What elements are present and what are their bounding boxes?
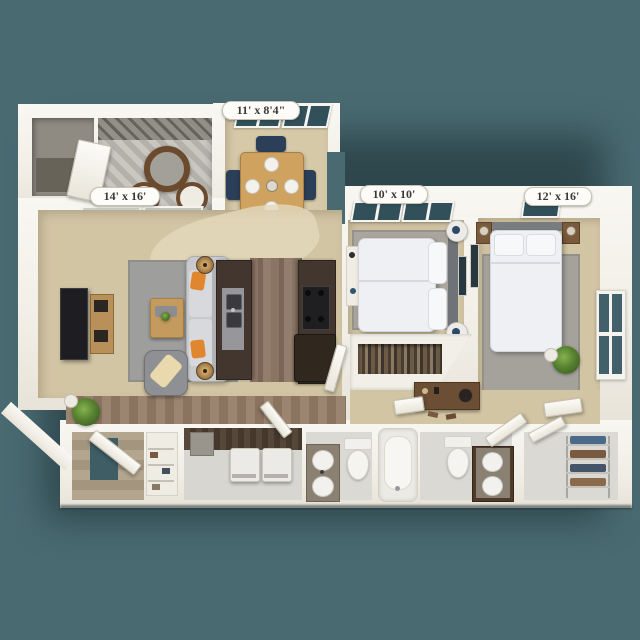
dimension-label-living: 14' x 16' bbox=[90, 187, 160, 206]
tv bbox=[60, 288, 88, 360]
window-mullion bbox=[375, 203, 381, 220]
bed-2-pillow bbox=[526, 234, 556, 256]
bed-1 bbox=[358, 238, 436, 332]
sofa-pillow bbox=[190, 271, 207, 291]
dimension-label-bedroom1: 10' x 10' bbox=[360, 185, 428, 204]
kitchen-sink-basin bbox=[226, 312, 242, 328]
floorplan-canvas: 11' x 8'4" 14' x 16' 10' x 10' 12' x 16' bbox=[0, 0, 640, 640]
media-console-item bbox=[94, 330, 108, 342]
stove-burner bbox=[318, 316, 324, 322]
bath2-sink bbox=[482, 476, 503, 496]
desk-item bbox=[350, 288, 356, 294]
desk-item bbox=[349, 252, 355, 258]
bath1-faucet bbox=[320, 470, 324, 474]
wall-art bbox=[458, 256, 467, 296]
dresser-item bbox=[422, 388, 428, 394]
dinner-plate bbox=[264, 157, 279, 172]
bath1-sink bbox=[312, 450, 334, 471]
bed-1-duvet-fold bbox=[358, 280, 434, 282]
dimension-label-bedroom2: 12' x 16' bbox=[524, 187, 592, 206]
bathtub-basin bbox=[384, 436, 412, 490]
folded-clothes bbox=[570, 436, 606, 444]
sofa-pillow bbox=[190, 339, 206, 359]
bedroom1-window bbox=[350, 201, 404, 222]
table-centerpiece bbox=[266, 180, 278, 192]
building-baseline bbox=[60, 505, 632, 509]
toilet-tank bbox=[344, 438, 372, 450]
stove-burner bbox=[318, 290, 324, 296]
wire-shelf bbox=[566, 444, 610, 446]
washer-door-seam bbox=[232, 474, 256, 478]
dresser-item bbox=[434, 387, 439, 394]
folded-clothes bbox=[570, 464, 606, 472]
shoe-shelf bbox=[148, 464, 174, 466]
shoe-shelf bbox=[148, 480, 174, 482]
wall-art bbox=[470, 244, 479, 288]
closet-clothes-rod bbox=[358, 344, 442, 374]
toilet-tank bbox=[444, 436, 472, 448]
bathtub-faucet bbox=[395, 486, 400, 491]
floor-lamp bbox=[196, 256, 214, 274]
media-console-item bbox=[94, 300, 108, 312]
wire-shelf bbox=[566, 472, 610, 474]
dryer-door-seam bbox=[264, 474, 288, 478]
wire-shelf bbox=[566, 458, 610, 460]
kitchen-faucet bbox=[231, 308, 235, 312]
stove-burner bbox=[305, 290, 311, 296]
dinner-plate bbox=[284, 179, 299, 194]
folded-clothes bbox=[570, 450, 606, 458]
patio-lattice-shade bbox=[98, 118, 212, 140]
bed-1-pillow bbox=[428, 288, 447, 330]
bed-2-pillow bbox=[494, 234, 524, 256]
dimension-label-dining: 11' x 8'4" bbox=[222, 101, 300, 120]
floor-lamp bbox=[196, 362, 214, 380]
shoes bbox=[162, 468, 170, 474]
shoes bbox=[152, 484, 160, 490]
bed-1-pillow bbox=[428, 242, 447, 284]
plant-pot bbox=[64, 394, 78, 408]
dinner-plate bbox=[245, 179, 260, 194]
shoes bbox=[150, 452, 158, 458]
nightstand-lamp bbox=[479, 226, 489, 236]
dresser-mirror bbox=[458, 388, 473, 403]
window-pane bbox=[599, 336, 609, 374]
folded-clothes bbox=[570, 478, 606, 486]
stove-burner bbox=[305, 316, 311, 322]
window-mullion bbox=[426, 203, 432, 220]
window-pane bbox=[612, 294, 622, 332]
dining-chair bbox=[256, 136, 286, 152]
wire-shelf bbox=[566, 486, 610, 488]
bath1-sink bbox=[312, 476, 334, 497]
plant-pot bbox=[544, 348, 558, 362]
bedroom1-window bbox=[401, 201, 455, 222]
window-mullion bbox=[304, 106, 311, 126]
side-table-decor bbox=[452, 226, 460, 234]
nightstand-lamp bbox=[566, 226, 576, 236]
bed-1-headboard bbox=[448, 236, 458, 334]
window-pane bbox=[612, 336, 622, 374]
coffee-table-plant bbox=[161, 312, 170, 321]
hallway bbox=[66, 396, 346, 424]
window-pane bbox=[599, 294, 609, 332]
bath2-sink bbox=[482, 452, 503, 472]
shoe-shelf bbox=[148, 448, 174, 450]
laundry-cabinet bbox=[190, 432, 214, 456]
bed-2-duvet-fold bbox=[490, 262, 560, 264]
